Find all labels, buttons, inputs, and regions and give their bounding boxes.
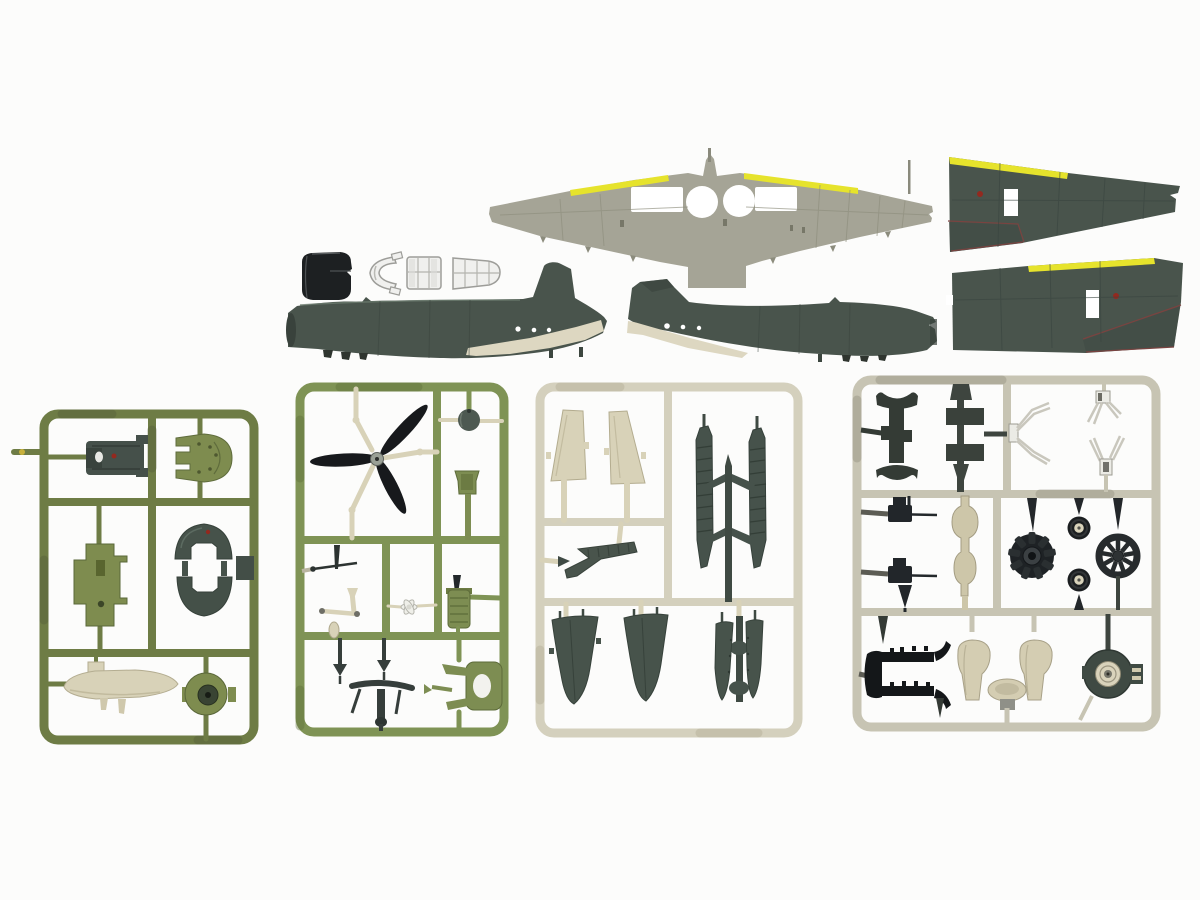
canopy-shade [409, 259, 415, 287]
sprue-b-green: green sprue with propeller and small fit… [300, 387, 504, 732]
part-seat-support-1 [958, 614, 990, 700]
part-gear-cover-1 [549, 604, 601, 704]
part-tailplane-2 [604, 411, 646, 520]
part-cowl-domes [175, 524, 254, 616]
canopy-shade [431, 259, 437, 287]
part-propeller [310, 389, 437, 538]
wheel-well-left [686, 186, 718, 218]
red-marking [1113, 293, 1119, 299]
fuselage-half-right: dark green fuselage half with cream lowe… [627, 279, 937, 362]
propeller-blade [310, 452, 379, 469]
aileron-shade [949, 222, 1023, 252]
canopy-mid-part: clear canopy centre greenhouse section [407, 257, 441, 289]
part-tailwheel-struts [333, 638, 412, 731]
part-spinner [440, 389, 502, 431]
part-wire-struts [1009, 382, 1124, 492]
part-drop-tank [46, 656, 178, 714]
windscreen-part: clear windscreen part [370, 252, 403, 295]
part-cockpit-deck [176, 416, 232, 500]
cowling-part: black engine cowling section [302, 252, 352, 300]
part-wheel-2 [1068, 569, 1091, 611]
photo-canvas: one-piece lower wing with yellow leading… [0, 0, 1200, 900]
part-equipment-tray [988, 679, 1026, 725]
part-gear-cover-2 [624, 602, 668, 701]
sprue-d-grey: grey sprue with engine, wheels, guns and… [857, 380, 1156, 727]
canopy-rear-part: clear canopy rear greenhouse section [453, 258, 500, 289]
tail-post [579, 347, 583, 357]
part-flap-section [542, 524, 637, 578]
part-bulkhead [74, 504, 127, 651]
part-machine-gun-2 [861, 558, 937, 612]
model-kit-photo: one-piece lower wing with yellow leading… [0, 0, 1200, 900]
part-bomb-rack [861, 392, 918, 480]
part-fuselage-blocks [946, 384, 1007, 492]
part-mount-fork [424, 638, 502, 730]
square-plate [236, 556, 254, 580]
belly-post [818, 354, 822, 362]
center-locator-pin [708, 148, 711, 162]
part-antenna [302, 545, 357, 572]
wheel-well-right [723, 185, 755, 217]
part-oil-cooler [446, 575, 500, 634]
sprue-c-cream: cream sprue with tailplanes, flaps and g… [540, 387, 798, 733]
runner-gate [19, 449, 25, 455]
panel-cutout [1086, 290, 1099, 318]
part-tailplane-1 [546, 410, 589, 520]
part-wheel-1 [1068, 498, 1091, 540]
part-small-hub [388, 598, 436, 615]
part-oleo-column [952, 496, 978, 610]
panel-cutout [1004, 189, 1018, 216]
hanging-pin [878, 616, 888, 644]
part-engine-mount [46, 435, 148, 477]
tail-post [549, 349, 553, 358]
nose-shade [930, 319, 937, 345]
part-cylinder-ring [1099, 498, 1137, 610]
root-notch [946, 295, 953, 305]
upper-wing-panel-2: upper wing panel with yellow outer leadi… [946, 258, 1183, 353]
nose-face [286, 313, 296, 347]
part-cowl-ring [182, 655, 236, 739]
part-gear-housing [1080, 614, 1143, 720]
part-seat [455, 471, 479, 540]
part-crank [319, 588, 360, 638]
part-flap-rack [696, 414, 766, 602]
part-machine-gun-1 [861, 496, 937, 522]
upper-wing-panel-1: upper wing panel with yellow outer leadi… [948, 157, 1180, 252]
sprue-a-olive: olive green sprue with cockpit and cowl … [14, 414, 254, 740]
right-antenna-pin [908, 160, 911, 194]
part-gear-door-pair [715, 602, 763, 702]
red-marking [977, 191, 983, 197]
part-radial-engine [1008, 498, 1056, 580]
part-exhaust-manifold [859, 641, 951, 718]
